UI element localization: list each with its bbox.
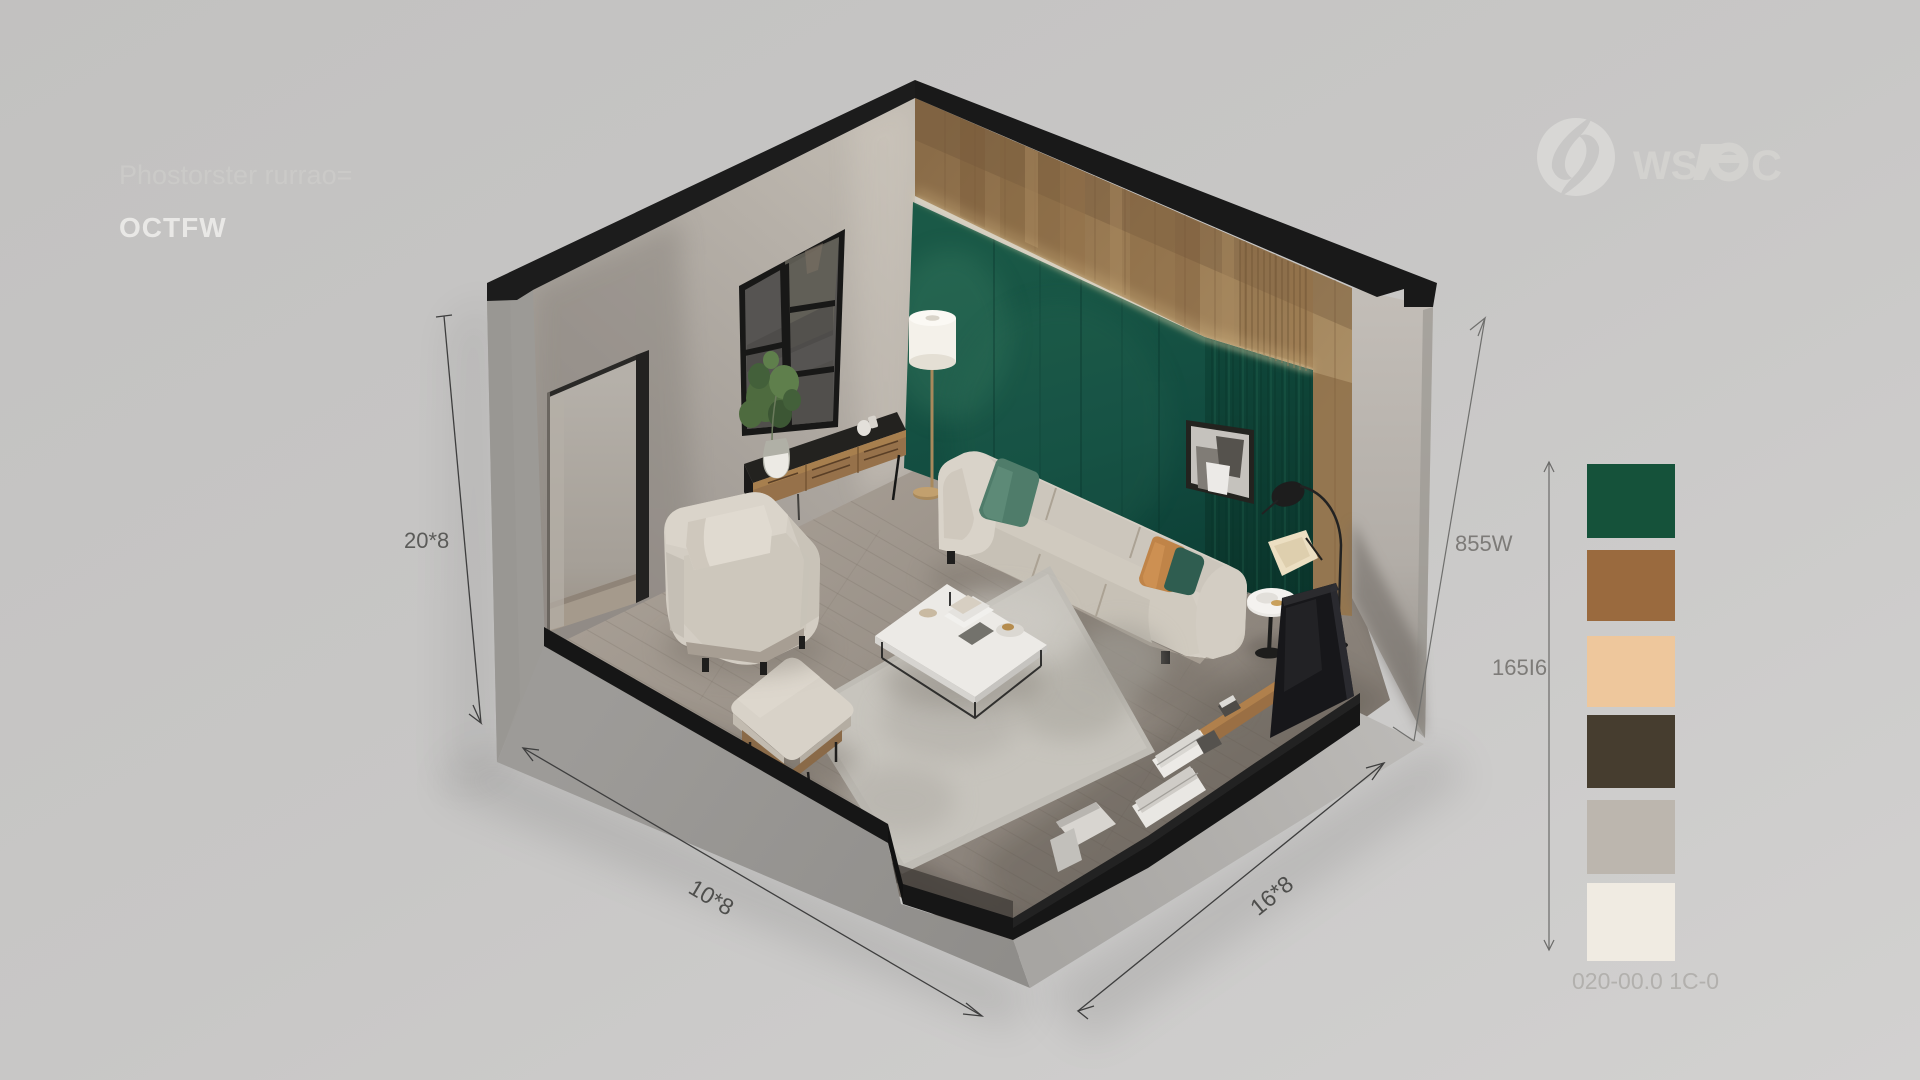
svg-text:855W: 855W xyxy=(1455,531,1513,556)
svg-text:WS: WS xyxy=(1633,144,1697,188)
svg-text:20*8: 20*8 xyxy=(404,528,449,553)
svg-text:165I6: 165I6 xyxy=(1492,655,1547,680)
svg-text:C: C xyxy=(1751,142,1782,190)
svg-text:OCTFW: OCTFW xyxy=(119,212,227,243)
svg-text:020-00.0 1C-0: 020-00.0 1C-0 xyxy=(1572,968,1719,994)
svg-text:Phostorster rurrao=: Phostorster rurrao= xyxy=(119,160,352,190)
